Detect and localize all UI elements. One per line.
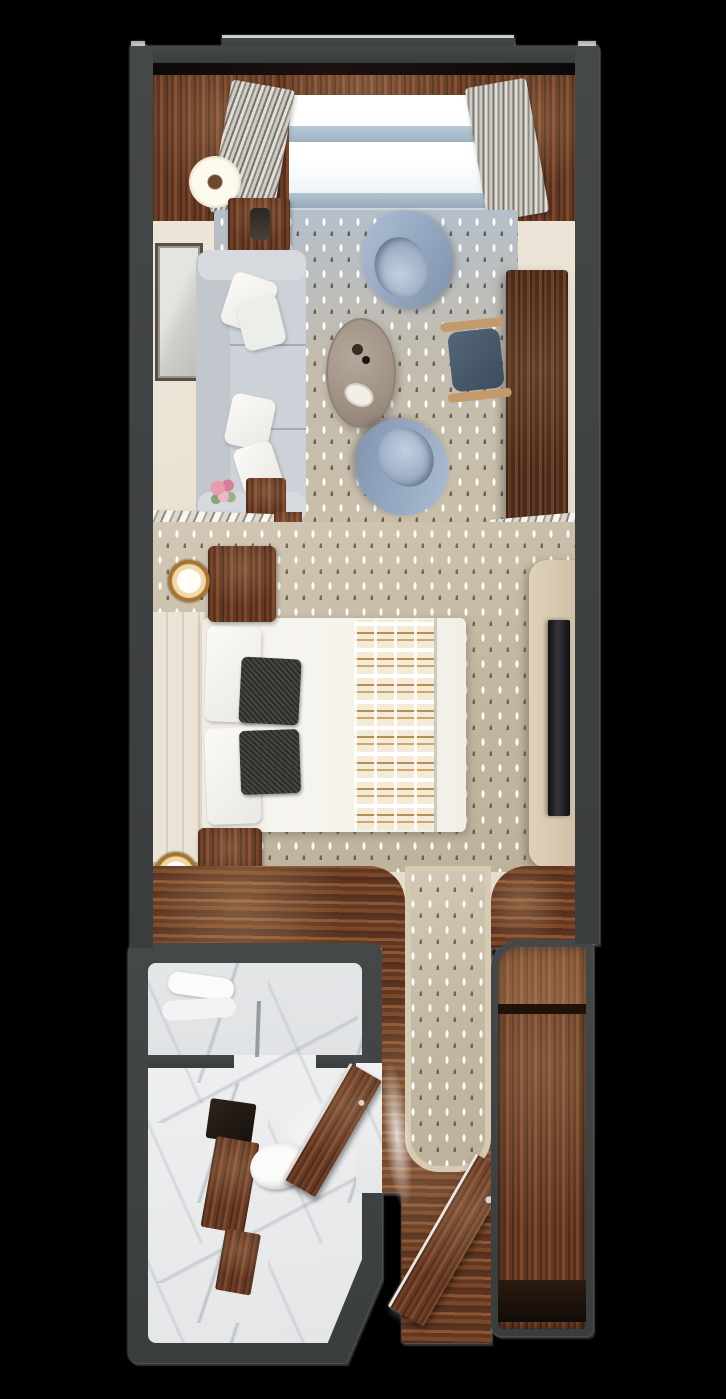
tv-icon bbox=[548, 620, 570, 816]
screenshot-canvas bbox=[0, 0, 726, 1399]
bathroom-block bbox=[128, 943, 382, 1363]
accent-pillow bbox=[238, 656, 301, 725]
bedside-lamp-icon bbox=[164, 556, 214, 606]
closet-shelf bbox=[498, 1004, 586, 1014]
partition-wall bbox=[148, 1055, 234, 1068]
bed-runner bbox=[354, 620, 434, 830]
desk bbox=[506, 270, 568, 522]
flower-vase-icon bbox=[208, 476, 240, 510]
accent-pillow bbox=[239, 729, 301, 795]
decor-icon bbox=[362, 356, 370, 364]
window-track bbox=[152, 62, 575, 75]
wall-right bbox=[575, 46, 599, 944]
closet-base bbox=[498, 1280, 586, 1322]
closet-upper-sheen bbox=[498, 947, 586, 1004]
table-lamp-icon bbox=[250, 208, 270, 240]
closet-block bbox=[491, 940, 593, 1336]
desk-chair bbox=[440, 317, 512, 403]
suite-floor-plan bbox=[0, 0, 726, 1399]
decor-icon bbox=[352, 344, 363, 355]
door-handle-icon bbox=[357, 1099, 365, 1107]
coffee-table bbox=[326, 318, 396, 428]
headboard bbox=[152, 612, 206, 862]
nightstand-upper bbox=[208, 546, 276, 622]
armchair-seat bbox=[368, 232, 434, 304]
wall-left bbox=[130, 46, 153, 948]
window-rail-lower-icon bbox=[289, 193, 488, 208]
window-rail-upper-icon bbox=[289, 126, 488, 142]
corridor-floor-right bbox=[491, 866, 577, 948]
corridor-floor-left bbox=[152, 866, 405, 948]
hall-runner bbox=[405, 866, 491, 1172]
sheet-fold bbox=[434, 618, 437, 832]
wall-top bbox=[130, 46, 596, 63]
vanity-counter bbox=[205, 1098, 256, 1144]
desk-chair-seat bbox=[447, 327, 505, 392]
